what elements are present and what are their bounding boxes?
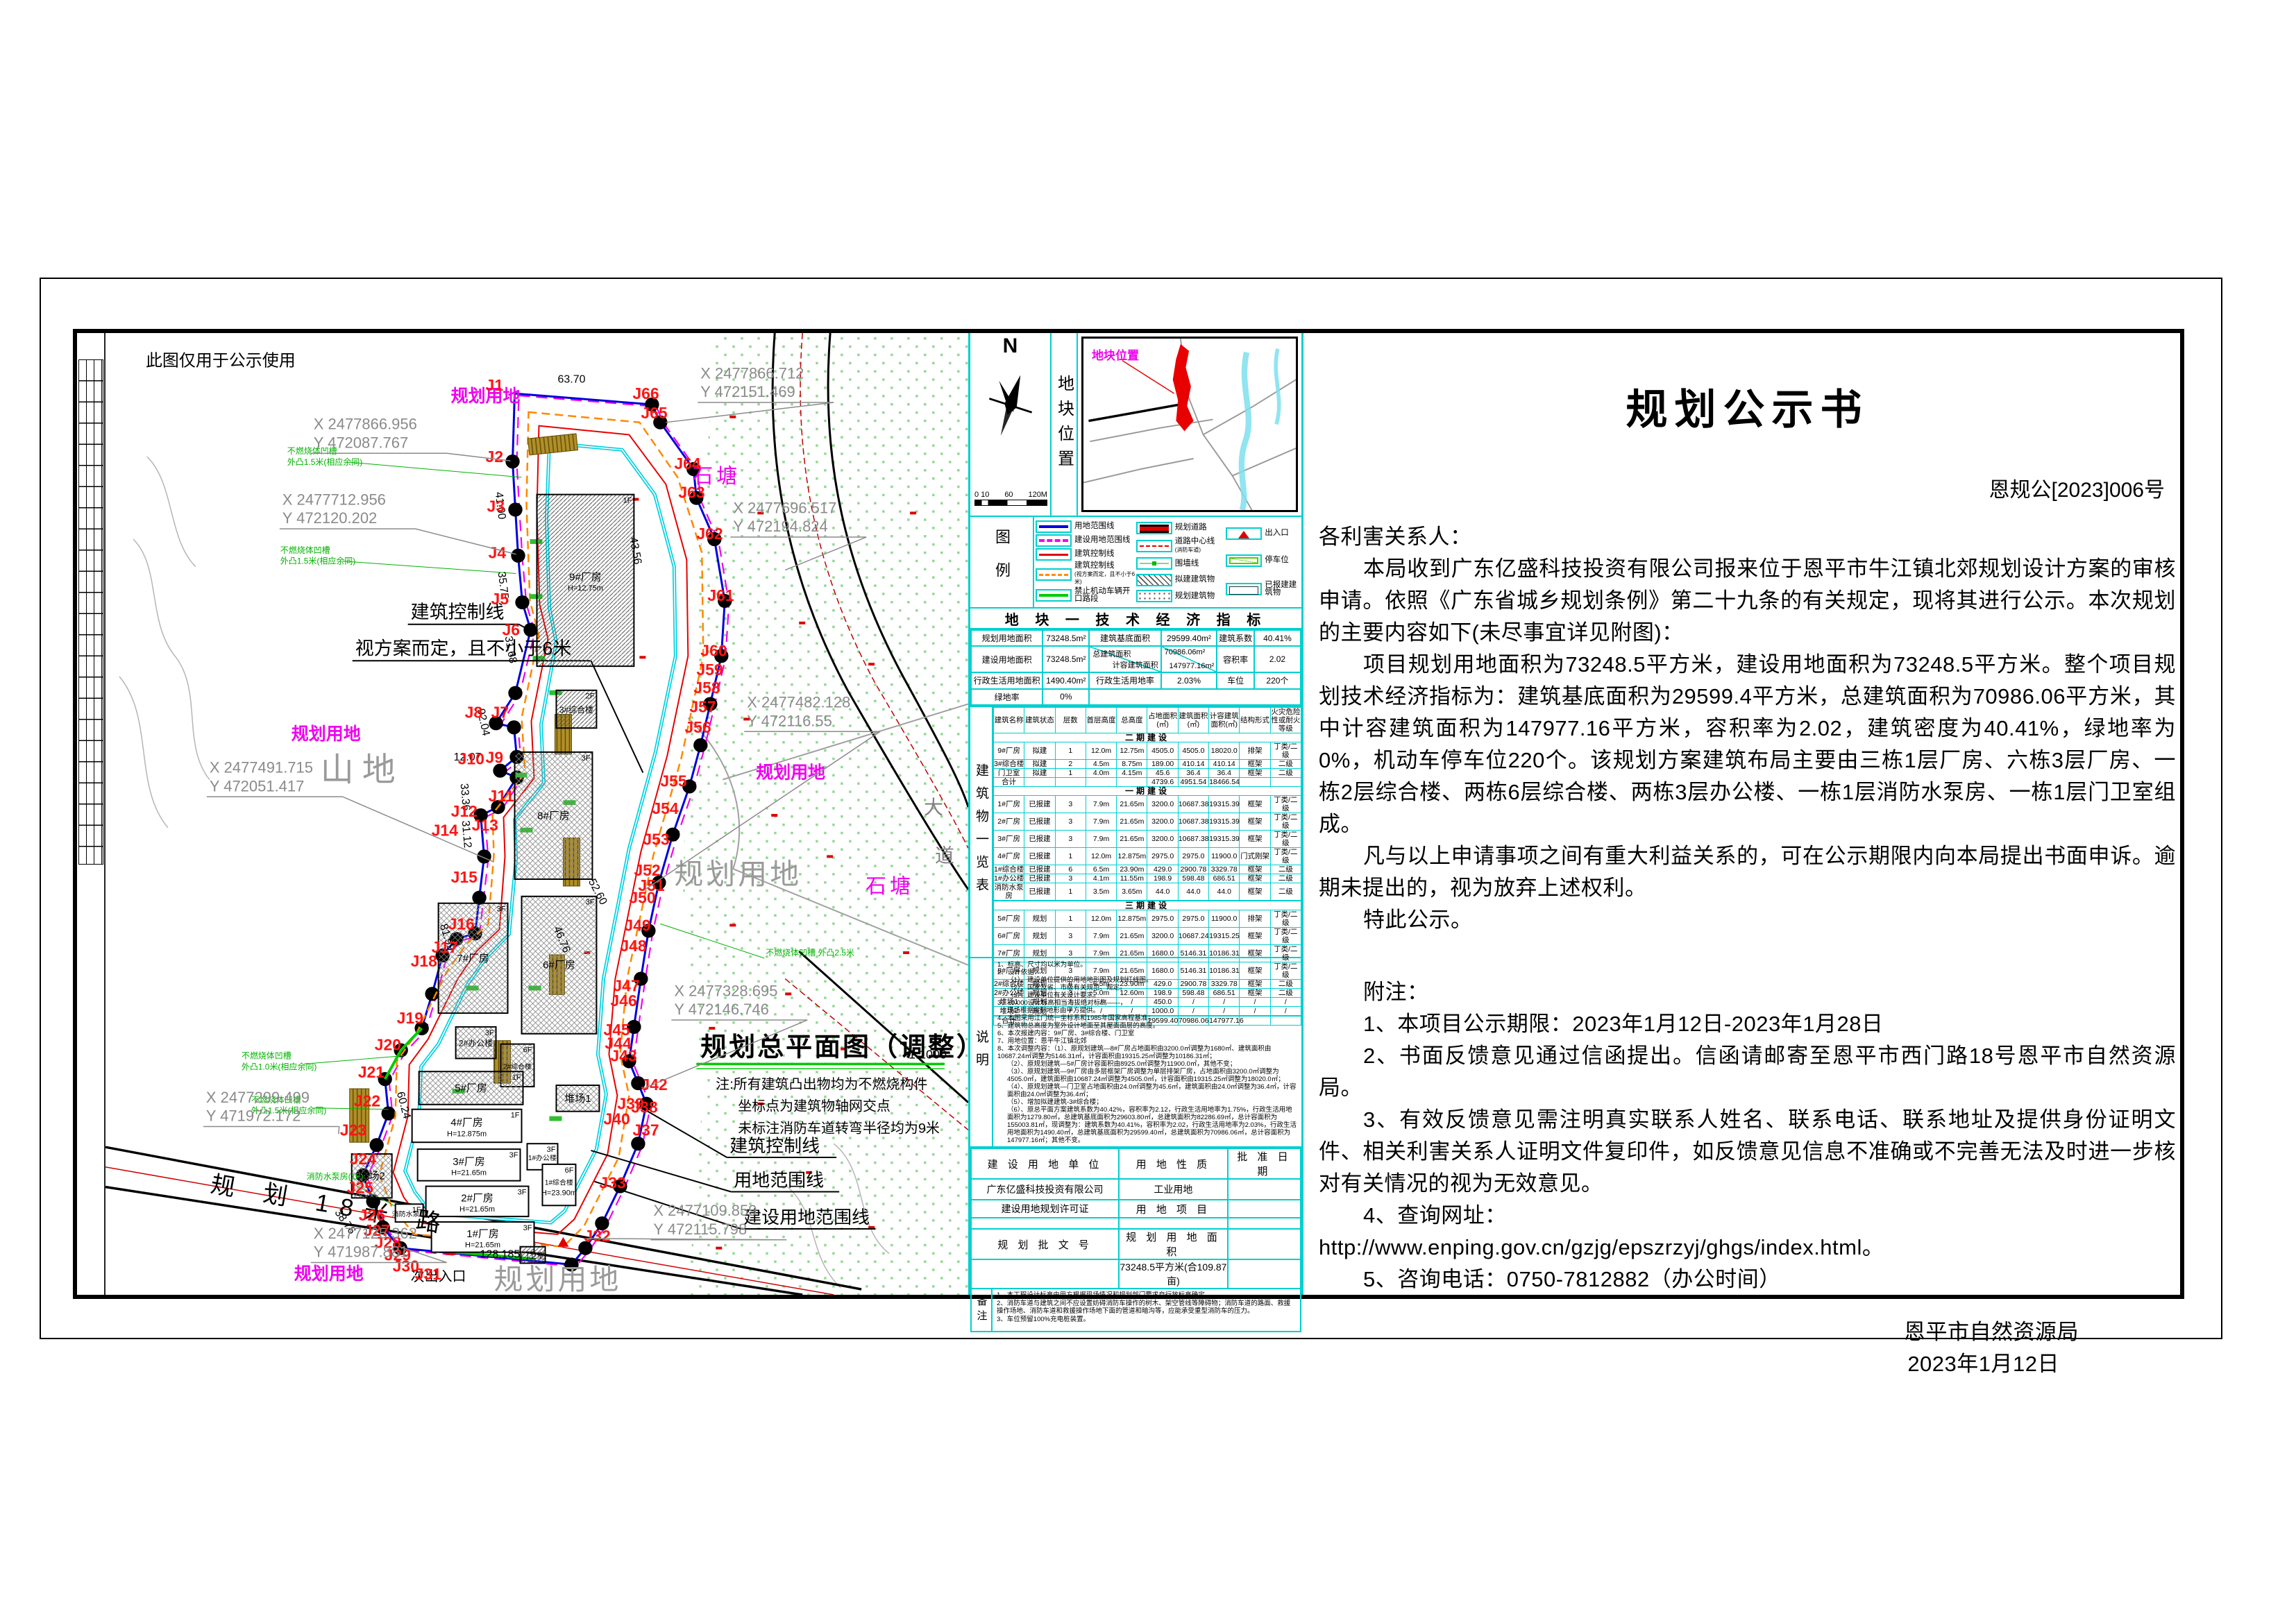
location-inset-cell: 地块位置 [1078,333,1301,516]
coord-x: X 2477125.362 [314,1225,417,1242]
table-cell: 21.65m [1117,928,1147,945]
coord-x: X 2477866.712 [700,364,804,382]
gt-v: 广东亿盛科技投资有限公司 [971,1179,1119,1200]
boundary-point-J37: J37 [632,1121,659,1139]
scale-bar: 0 10 60 120M [974,491,1047,506]
building-col-header: 建筑面积(㎡) [1178,708,1208,733]
split-v2: 147977.16m² [1170,662,1215,670]
split-v1: 70986.06m² [1165,648,1206,656]
coord-y: Y 472120.202 [282,509,377,527]
map-annotation: 规划用地 [494,1263,622,1295]
ind-label: 建筑系数 [1217,630,1254,646]
table-row: 5#厂房规划112.0m12.875m2975.02975.011900.0排架… [994,910,1301,928]
building-col-header: 层数 [1055,708,1086,733]
page-title: 规划公示书 [1319,376,2176,436]
building-name: 堆场1 [564,1093,591,1105]
table-cell: 2900.78 [1178,865,1208,874]
map-annotation: 视方案而定，且不小于6米 [355,638,572,658]
coord-y: Y 471972.172 [206,1107,301,1125]
boundary-point-J62: J62 [696,525,723,543]
paragraph: 3、有效反馈意见需注明真实联系人姓名、联系电话、联系地址及提供身份证明文件、相关… [1319,1104,2176,1200]
signature-org: 恩平市自然资源局 [1319,1316,2176,1348]
boundary-point-J53: J53 [643,831,669,849]
map-annotation: 建筑控制线 [411,602,505,622]
gt-h: 规 划 批 文 号 [971,1229,1119,1259]
gt-h: 规 划 用 地 面 积 [1119,1229,1228,1259]
boundary-point-J4: J4 [489,544,507,562]
boundary-point-J3: J3 [487,497,505,515]
ind-label: 车位 [1217,672,1254,688]
coord-x: X 2477299.499 [206,1089,310,1106]
table-cell: 11.55m [1117,874,1147,883]
table-cell: 1 [1055,769,1086,778]
boundary-point-J57: J57 [689,698,716,716]
gt-blank [971,1218,1119,1229]
table-cell: 7.9m [1086,928,1116,945]
table-cell: 拟建 [1024,769,1055,778]
gt-v: 工业用地 [1119,1179,1228,1200]
paragraph [1319,936,2176,976]
legend-item: 围墙线 [1136,557,1226,570]
building-floors: 1F [511,1112,520,1120]
map-annotation: 外凸1.0米(相应余同) [242,1062,316,1071]
table-cell: 4505.0 [1147,742,1178,760]
table-cell: 框架 [1240,883,1270,901]
table-cell: 410.14 [1178,760,1208,769]
table-row: 2#厂房已报建37.9m21.65m3200.010687.3819315.39… [994,813,1301,831]
table-cell: 7.9m [1086,813,1116,831]
building-floors: 3F [497,906,506,914]
table-cell: 3#综合楼 [994,760,1024,769]
table-cell: 18466.54 [1209,778,1240,787]
legend-swatch-plain [1226,583,1262,595]
note-line: 6、本次报建内容：9#厂房、3#综合楼、门卫室 [997,1030,1297,1037]
map-annotation: 建筑控制线 [729,1136,820,1156]
table-cell: 已报建 [1024,865,1055,874]
inset-callout-label: 地块位置 [1092,346,1139,363]
legend-swatch-grn [1036,589,1072,602]
map-annotation: 规划用地 [294,1264,364,1284]
table-cell: 排架 [1240,742,1270,760]
map-annotation: 用地范围线 [734,1171,824,1191]
map-annotation: 128.185 [480,1249,521,1261]
scale-120: 120M [1028,491,1047,499]
table-cell: 框架 [1240,865,1270,874]
table-cell: 框架 [1240,874,1270,883]
table-cell: 12.0m [1086,848,1116,865]
table-cell: 686.51 [1209,874,1240,883]
table-cell: 丁类/二级 [1270,796,1301,813]
building-floors: 3F [518,1189,527,1197]
building-floors: 2F [586,692,595,701]
legend-label: 围墙线 [1175,560,1199,568]
table-cell: 9#厂房 [994,742,1024,760]
boundary-point-J2: J2 [486,448,504,466]
table-cell [1240,778,1270,787]
table-cell: 3 [1055,928,1086,945]
compass-rose-icon [979,357,1043,461]
boundary-point-J20: J20 [375,1036,401,1054]
scale-0: 0 10 [974,491,989,499]
note-line: 4、本图采用江门统一坐标系和1985年国家高程基准； [997,1014,1297,1022]
legend-label: 停车位 [1265,556,1289,565]
coord-x: X 2477696.517 [733,499,836,516]
legend-label: 建设用地范围线 [1074,536,1131,545]
table-row: 消防水泵房已报建13.5m3.65m44.044.044.0框架二级 [994,883,1301,901]
legend-item: 建设用地范围线 [1036,534,1136,547]
boundary-point-J43: J43 [610,1046,636,1064]
building-name: 门卫室 [521,1251,544,1261]
table-cell: 10687.38 [1178,796,1208,813]
table-cell: 二级 [1270,883,1301,901]
table-cell: 排架 [1240,910,1270,928]
paragraph: 项目规划用地面积为73248.5平方米，建设用地面积为73248.5平方米。整个… [1319,649,2176,840]
coord-x: X 2477712.956 [282,491,386,509]
table-cell: 丁类/二级 [1270,848,1301,865]
table-cell: 已报建 [1024,831,1055,848]
boundary-point-J66: J66 [632,384,659,402]
boundary-point-J21: J21 [358,1063,385,1081]
legend-col2: 规划道路道路中心线(消防车道)围墙线拟建建筑物规划建筑物 [1136,520,1226,604]
ind-split-label: 总建筑面积 计容建筑面积 [1089,646,1160,672]
table-cell: 2975.0 [1147,910,1178,928]
table-cell: 189.00 [1147,760,1178,769]
building-col-header: 首层高度 [1086,708,1116,733]
indicators-row: 规划用地面积 73248.5m² 建筑基底面积 29599.40m² 建筑系数 … [970,629,1301,707]
boundary-point-J23: J23 [340,1121,366,1139]
legend-swatch-road [1136,522,1172,534]
map-annotation: 坐标点为建筑物轴网交点 [738,1099,890,1114]
remark-list: 1、本工程设计标高由甲方根据现场情况和规划部门要求自行放标高确定。2、消防车道与… [993,1289,1300,1331]
building-name: 2#厂房 [461,1192,493,1204]
ind-value: 29599.40m² [1161,630,1217,646]
scale-60: 60 [1004,491,1013,499]
table-cell: 框架 [1240,813,1270,831]
boundary-point-J64: J64 [674,454,701,473]
boundary-point-J63: J63 [678,484,704,502]
gt-h: 批 准 日 期 [1228,1148,1301,1179]
paragraph: 1、本项目公示期限：2023年1月12日-2023年1月28日 [1319,1008,2176,1040]
table-cell: 二级 [1270,769,1301,778]
boundary-point-J6: J6 [503,621,521,639]
table-cell: 10687.24 [1178,928,1208,945]
building-list-title-cell: 建筑物一览表 [970,707,993,957]
note-line: 5、建筑物总高度为室外设计地面至其屋面面层的高度。 [997,1022,1297,1030]
table-cell: 6#厂房 [994,928,1024,945]
boundary-point-J59: J59 [696,661,723,679]
ind-label: 建设用地面积 [971,646,1043,672]
legend-label: 建筑控制线 [1074,550,1115,559]
boundary-point-J55: J55 [660,772,687,790]
table-cell: 3200.0 [1147,831,1178,848]
boundary-point-J18: J18 [411,952,438,970]
legend-col3: 出入口停车位已报建建筑物 [1226,520,1300,604]
boundary-point-J10: J10 [458,750,484,768]
legend-label: 已报建建筑物 [1265,581,1300,597]
boundary-point-J5: J5 [491,590,509,608]
remark-title-cell: 备注 [972,1289,993,1331]
boundary-point-J16: J16 [448,915,475,933]
map-annotation: 63.70 [557,373,585,385]
remark-block: 备注 1、本工程设计标高由甲方根据现场情况和规划部门要求自行放标高确定。2、消防… [970,1289,1301,1332]
boundary-point-J9: J9 [486,749,504,767]
table-cell: 11900.0 [1209,910,1240,928]
table-cell: 丁类/二级 [1270,928,1301,945]
table-row: 合计4739.64951.5418466.54 [994,778,1301,787]
note-line: 7、用地位置：恩平牛江镇北郊 [997,1037,1297,1045]
legend-item: 道路中心线(消防车道) [1136,538,1226,554]
map-annotation: 道 [935,844,954,866]
ind-value: 0% [1043,689,1089,705]
table-cell: 1 [1055,848,1086,865]
indicators-table: 规划用地面积 73248.5m² 建筑基底面积 29599.40m² 建筑系数 … [970,629,1301,706]
table-cell: 2975.0 [1147,848,1178,865]
boundary-point-J54: J54 [652,799,679,817]
table-cell: 门卫室 [994,769,1024,778]
table-cell: 4.15m [1117,769,1147,778]
table-cell: 已报建 [1024,796,1055,813]
building-col-header: 建筑状态 [1024,708,1055,733]
compass-and-location-row: N 0 10 60 120M [970,333,1301,517]
legend-label: 拟建建筑物 [1175,576,1215,584]
table-cell: 3#厂房 [994,831,1024,848]
legend-item: 建筑控制线(视方案而定，且不小于6米) [1036,562,1136,586]
table-cell: 12.875m [1117,910,1147,928]
paragraph: 2、书面反馈意见通过信函提出。信函请邮寄至恩平市西门路18号恩平市自然资源局。 [1319,1040,2176,1104]
legend-swatch-hatch [1136,574,1172,586]
table-cell: 已报建 [1024,883,1055,901]
table-row: 1#办公楼已报建34.1m11.55m198.9598.48686.51框架二级 [994,874,1301,883]
table-cell: 二级 [1270,865,1301,874]
table-cell: 8.75m [1117,760,1147,769]
legend-swatch-tri [1226,527,1262,540]
ind-value: 220个 [1254,672,1301,688]
leader-line [339,1126,339,1134]
boundary-point-J8: J8 [465,703,483,721]
table-cell [1117,778,1147,787]
boundary-point-J33: J33 [599,1174,625,1192]
table-cell: 2975.0 [1178,910,1208,928]
table-cell: 2 [1055,760,1086,769]
table-cell: 18020.0 [1209,742,1240,760]
table-cell: 1#办公楼 [994,874,1024,883]
paragraph: 各利害关系人： [1319,521,2176,553]
table-cell: 45.6 [1147,769,1178,778]
building-name: 8#厂房 [537,810,570,822]
coord-y: Y 472194.824 [733,518,827,535]
table-cell: 4505.0 [1178,742,1208,760]
building-col-header: 总高度 [1117,708,1147,733]
remark-line: 2、消防车道与建筑之间不应设置妨碍消防车操作的树木、架空管线等障碍物；消防车道的… [997,1300,1296,1316]
gt-v: 73248.5平方米(合109.87亩) [1119,1259,1228,1289]
planning-notice-sheet: 9#厂房H=12.75m1F3#综合楼2F8#厂房3F7#厂房3F6#厂房3F2… [0,0,2296,1623]
building-section-row: 二期建设 [994,733,1301,742]
table-cell: 3 [1055,831,1086,848]
legend-title-cell: 图例 [970,517,1034,607]
legend-item: 拟建建筑物 [1136,574,1226,586]
titleblock-cells [78,359,103,865]
table-cell: 3329.78 [1209,865,1240,874]
ind-value: 40.41% [1254,630,1301,646]
table-cell: 12.0m [1086,910,1116,928]
table-cell [1055,778,1086,787]
table-cell: 1#厂房 [994,796,1024,813]
site-plan-svg: 9#厂房H=12.75m1F3#综合楼2F8#厂房3F7#厂房3F6#厂房3F2… [105,333,968,1295]
coord-x: X 2477491.715 [210,759,313,776]
building-floors: 3F [485,1029,494,1037]
boundary-point-J15: J15 [451,868,478,886]
gt-h: 用 地 性 质 [1119,1148,1228,1179]
legend-label: 道路中心线(消防车道) [1175,538,1215,554]
map-annotation: 石塘 [866,875,914,898]
table-cell: 44.0 [1147,883,1178,901]
remark-line: 1、本工程设计标高由甲方根据现场情况和规划部门要求自行放标高确定。 [997,1291,1296,1300]
boundary-point-J7: J7 [491,703,509,721]
boundary-point-J31: J31 [415,1265,442,1283]
building-height: H=21.65m [451,1169,487,1178]
paragraph: 附注： [1319,976,2176,1008]
ind-label: 建筑基底面积 [1089,630,1160,646]
map-annotation: 1:1000 [909,1048,947,1062]
boundary-point-J24: J24 [350,1150,377,1168]
legend-swatch-ddred [1136,540,1172,552]
legend-label: 规划建筑物 [1175,593,1215,601]
table-cell [1024,778,1055,787]
table-cell: 19315.25 [1209,928,1240,945]
table-cell: 429.0 [1147,865,1178,874]
map-annotation: 不燃烧体凹槽 [242,1051,292,1060]
building-table-header: 建筑名称建筑状态层数首层高度总高度占地面积(㎡)建筑面积(㎡)计容建筑面积(㎡)… [994,708,1301,733]
boundary-point-J40: J40 [603,1110,630,1128]
table-cell: 规划 [1024,910,1055,928]
announcement-panel: 规划公示书 恩规公[2023]006号 各利害关系人：本局收到广东亿盛科技投资有… [1319,333,2176,1295]
table-cell: 198.9 [1147,874,1178,883]
site-plan-map: 9#厂房H=12.75m1F3#综合楼2F8#厂房3F7#厂房3F6#厂房3F2… [105,333,968,1295]
drawing-titleblock-strip [77,333,105,1295]
announcement-body: 各利害关系人：本局收到广东亿盛科技投资有限公司报来位于恩平市牛江镇北郊规划设计方… [1319,521,2176,1295]
coord-y: Y 472051.417 [210,777,304,794]
table-cell: 6 [1055,865,1086,874]
table-cell: 10687.38 [1178,831,1208,848]
boundary-point-J22: J22 [354,1092,380,1110]
building-name: 7#厂房 [457,953,489,965]
map-annotation: 注:所有建筑凸出物均为不燃烧构件 [716,1077,927,1092]
building-col-header: 占地面积(㎡) [1147,708,1178,733]
table-row: 9#厂房拟建112.0m12.75m4505.04505.018020.0排架丁… [994,742,1301,760]
table-cell: 2#厂房 [994,813,1024,831]
coord-x: X 2477328.695 [674,982,777,999]
legend-label: 规划道路 [1175,524,1207,532]
note-line: 3、±0.000设计标高相当海拔绝对标高——， [997,999,1297,1007]
boundary-point-J25: J25 [347,1179,374,1197]
notes-title-cell: 说明 [970,958,993,1146]
table-cell: 1 [1055,742,1086,760]
boundary-point-J65: J65 [641,404,668,422]
boundary-point-J38: J38 [631,1098,658,1116]
legend-item: 出入口 [1226,527,1300,540]
table-cell: 1#综合楼 [994,865,1024,874]
building-height: H=12.75m [568,584,603,593]
table-cell: 3200.0 [1147,813,1178,831]
notes-row: 说明 1、标高、尺寸均以米为单位。2、设计依据：（1）、建设单位提供的用地地形图… [970,958,1301,1148]
paragraph: 4、查询网址： [1319,1200,2176,1232]
note-line: （6）、原总平面方案建筑系数为40.42%，容积率为2.12，行政生活用地率为1… [997,1106,1297,1144]
gt-v [1228,1200,1301,1218]
table-cell: 二级 [1270,874,1301,883]
table-cell: 11900.0 [1209,848,1240,865]
map-annotation: 未标注消防车道转弯半径均为9米 [738,1121,940,1136]
legend-swatch-pdots [1136,590,1172,602]
legend-items: 用地范围线建设用地范围线建筑控制线建筑控制线(视方案而定，且不小于6米)禁止机动… [1034,517,1301,607]
building-name: 1#综合楼 [545,1178,573,1187]
legend-item: 禁止机动车辆开口路段 [1036,588,1136,604]
boundary-point-J58: J58 [693,679,720,697]
ind-label: 规划用地面积 [971,630,1043,646]
location-inset-map: 地块位置 [1081,337,1298,512]
building-name: 2#综合楼 [503,1062,532,1071]
gt-v [1228,1259,1301,1289]
table-cell: 已报建 [1024,813,1055,831]
table-cell: 3.5m [1086,883,1116,901]
table-cell: 44.0 [1209,883,1240,901]
table-cell: 拟建 [1024,742,1055,760]
building-name: 4#厂房 [450,1117,483,1129]
approval-row: 建 设 用 地 单 位 用 地 性 质 批 准 日 期 广东亿盛科技投资有限公司… [970,1148,1301,1295]
table-cell: 12.75m [1117,742,1147,760]
table-cell: 2975.0 [1178,848,1208,865]
compass-cell: N 0 10 60 120M [970,333,1052,516]
table-cell: 19315.39 [1209,813,1240,831]
coord-y: Y 472116.55 [747,712,832,729]
gt-v [971,1259,1119,1289]
building-section-row: 三期建设 [994,901,1301,910]
legend-label: 禁止机动车辆开口路段 [1074,588,1136,604]
building-floors: 3F [586,899,595,907]
gt-h: 建 设 用 地 单 位 [971,1148,1119,1179]
table-cell: 3 [1055,874,1086,883]
notes-body: 1、标高、尺寸均以米为单位。2、设计依据：（1）、建设单位提供的用地地形图及规划… [993,958,1301,1146]
table-cell [1270,778,1301,787]
location-title-cell: 地块位置 [1052,333,1078,516]
map-annotation: 规划用地 [756,763,825,783]
ind-empty [1089,689,1301,705]
note-line: 8、本次调整内容：（1）、原规划建筑—8#厂房占地面积由3200.0㎡调整为16… [997,1045,1297,1060]
building-floors: 3F [547,1146,556,1154]
ind-value: 1490.40m² [1043,672,1089,688]
map-annotation: 此图仅用于公示使用 [146,352,296,371]
split-l2: 计容建筑面积 [1113,659,1158,670]
building-name: 3#厂房 [453,1156,485,1168]
gt-blank [1119,1218,1228,1229]
building-floors: 1F [623,497,632,505]
map-annotation: 规划用地 [292,724,361,744]
table-cell: 丁类/二级 [1270,813,1301,831]
ind-label: 容积率 [1217,646,1254,672]
paragraph: 特此公示。 [1319,904,2176,936]
table-cell: 7.9m [1086,831,1116,848]
building-name: 1#办公楼 [528,1153,557,1162]
ind-value: 73248.5m² [1043,630,1089,646]
table-cell: 1 [1055,910,1086,928]
table-cell: 12.0m [1086,742,1116,760]
boundary-point-J1: J1 [486,376,504,394]
legend-swatch-park [1226,554,1262,567]
table-cell: 4739.6 [1147,778,1178,787]
table-cell: 3 [1055,813,1086,831]
signature-date: 2023年1月12日 [1319,1348,2176,1380]
indicators-title-row: 地 块 一 技 术 经 济 指 标 [970,609,1301,629]
table-cell: 3200.0 [1147,796,1178,813]
